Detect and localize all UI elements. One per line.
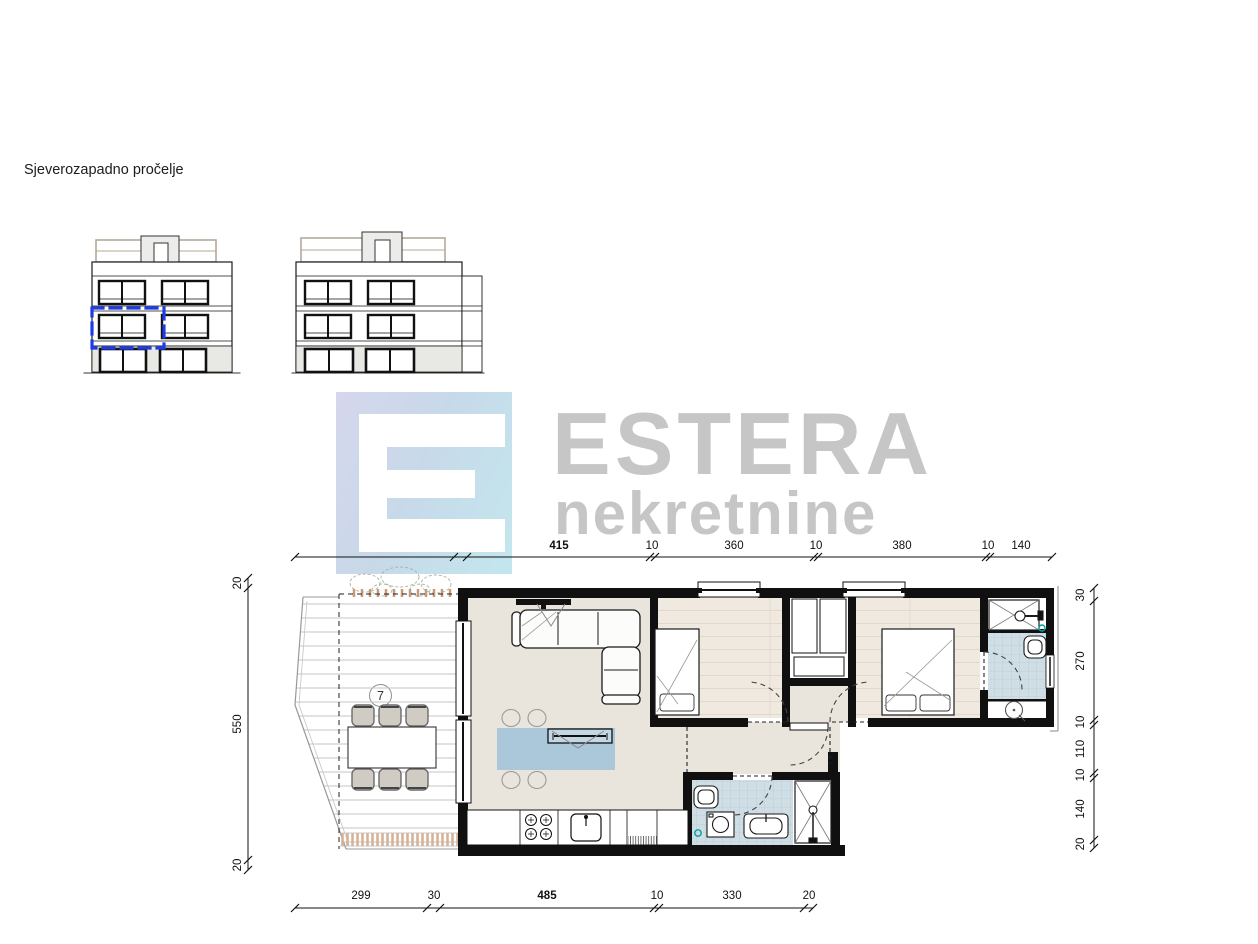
- dimension-lines: [244, 553, 1098, 912]
- stove: [526, 815, 552, 840]
- elevation-drawing: [84, 232, 484, 373]
- window-terrace-1: [456, 621, 471, 716]
- logo-icon: [336, 392, 512, 574]
- walls: [458, 588, 1054, 856]
- bathroom6-fixtures: [989, 600, 1046, 721]
- floorplan-sheet: { "title": "Sjeverozapadno pročelje", "l…: [0, 0, 1258, 944]
- double-bed: [882, 629, 954, 715]
- pillow: [920, 695, 950, 711]
- room-label-1: 1: [745, 737, 768, 760]
- kitchen-island: [497, 728, 615, 770]
- dining-table: [348, 705, 436, 790]
- bar-stools: [502, 710, 546, 789]
- kitchen-counter: [467, 810, 688, 845]
- floor-fills: [466, 596, 1046, 851]
- dim-label: 330: [722, 890, 741, 902]
- pillow: [660, 694, 694, 711]
- dim-label: 30: [428, 890, 441, 902]
- dishwasher-vent: [628, 836, 657, 845]
- dim-label: 10: [651, 890, 664, 902]
- toilet: [1024, 636, 1046, 658]
- dim-label: 380: [892, 540, 911, 552]
- right-dimension-line: [1090, 584, 1098, 852]
- dim-label: 20: [230, 843, 246, 887]
- page-title: Sjeverozapadno pročelje: [24, 162, 184, 178]
- room-label-3: 3: [714, 647, 737, 670]
- highlighted-unit-outline: [92, 308, 164, 348]
- dim-label: 270: [1073, 639, 1089, 683]
- sofa: [512, 610, 640, 704]
- bathroom4-fixtures: [694, 781, 831, 843]
- toilet: [694, 786, 718, 808]
- room-label-5: 5: [897, 646, 920, 669]
- single-bed: [655, 629, 699, 715]
- room-label-2: 2: [549, 685, 572, 708]
- elevation-left-building: [84, 236, 240, 373]
- shower: [795, 781, 831, 843]
- bedroom3-furniture: [655, 629, 699, 715]
- sink: [744, 814, 788, 838]
- window-bedroom5: [843, 582, 905, 597]
- floor-drain: [1039, 625, 1045, 631]
- dim-label: 20: [1073, 822, 1089, 866]
- entry-door-leaf: [790, 723, 828, 730]
- doors: [687, 652, 1022, 815]
- floor-plan: [244, 553, 1098, 912]
- dim-label: 10: [982, 540, 995, 552]
- planter-strip: [340, 833, 458, 846]
- windows: [456, 582, 1058, 803]
- room-label-7: 7: [369, 684, 392, 707]
- bottom-dimension-line: [291, 904, 817, 912]
- window-terrace-2: [456, 720, 471, 803]
- room-label-4: 4: [758, 790, 781, 813]
- dim-label: 485: [537, 890, 556, 902]
- dim-label: 20: [230, 561, 246, 605]
- brand-subtitle: nekretnine: [554, 484, 877, 544]
- bedroom5-furniture: [882, 629, 954, 715]
- room-label-6: 6: [1006, 670, 1029, 693]
- dim-label: 299: [351, 890, 370, 902]
- dim-label: 140: [1011, 540, 1030, 552]
- dim-label: 30: [1073, 573, 1089, 617]
- kitchen-sink: [571, 814, 601, 841]
- dim-label: 550: [230, 702, 246, 746]
- living-room-furniture: [467, 599, 688, 845]
- tv: [516, 599, 571, 626]
- brand-name: ESTERA: [552, 400, 933, 488]
- elevation-right-building: [292, 232, 484, 373]
- washing-machine: [707, 812, 734, 837]
- closet: [792, 599, 846, 676]
- washing-machine: [1006, 702, 1023, 719]
- terrace: [292, 567, 458, 849]
- window-bath6: [1046, 655, 1054, 688]
- pillow: [886, 695, 916, 711]
- floor-drain: [695, 830, 701, 836]
- window-bedroom3: [698, 582, 760, 597]
- shower: [989, 600, 1043, 630]
- dim-label: 20: [803, 890, 816, 902]
